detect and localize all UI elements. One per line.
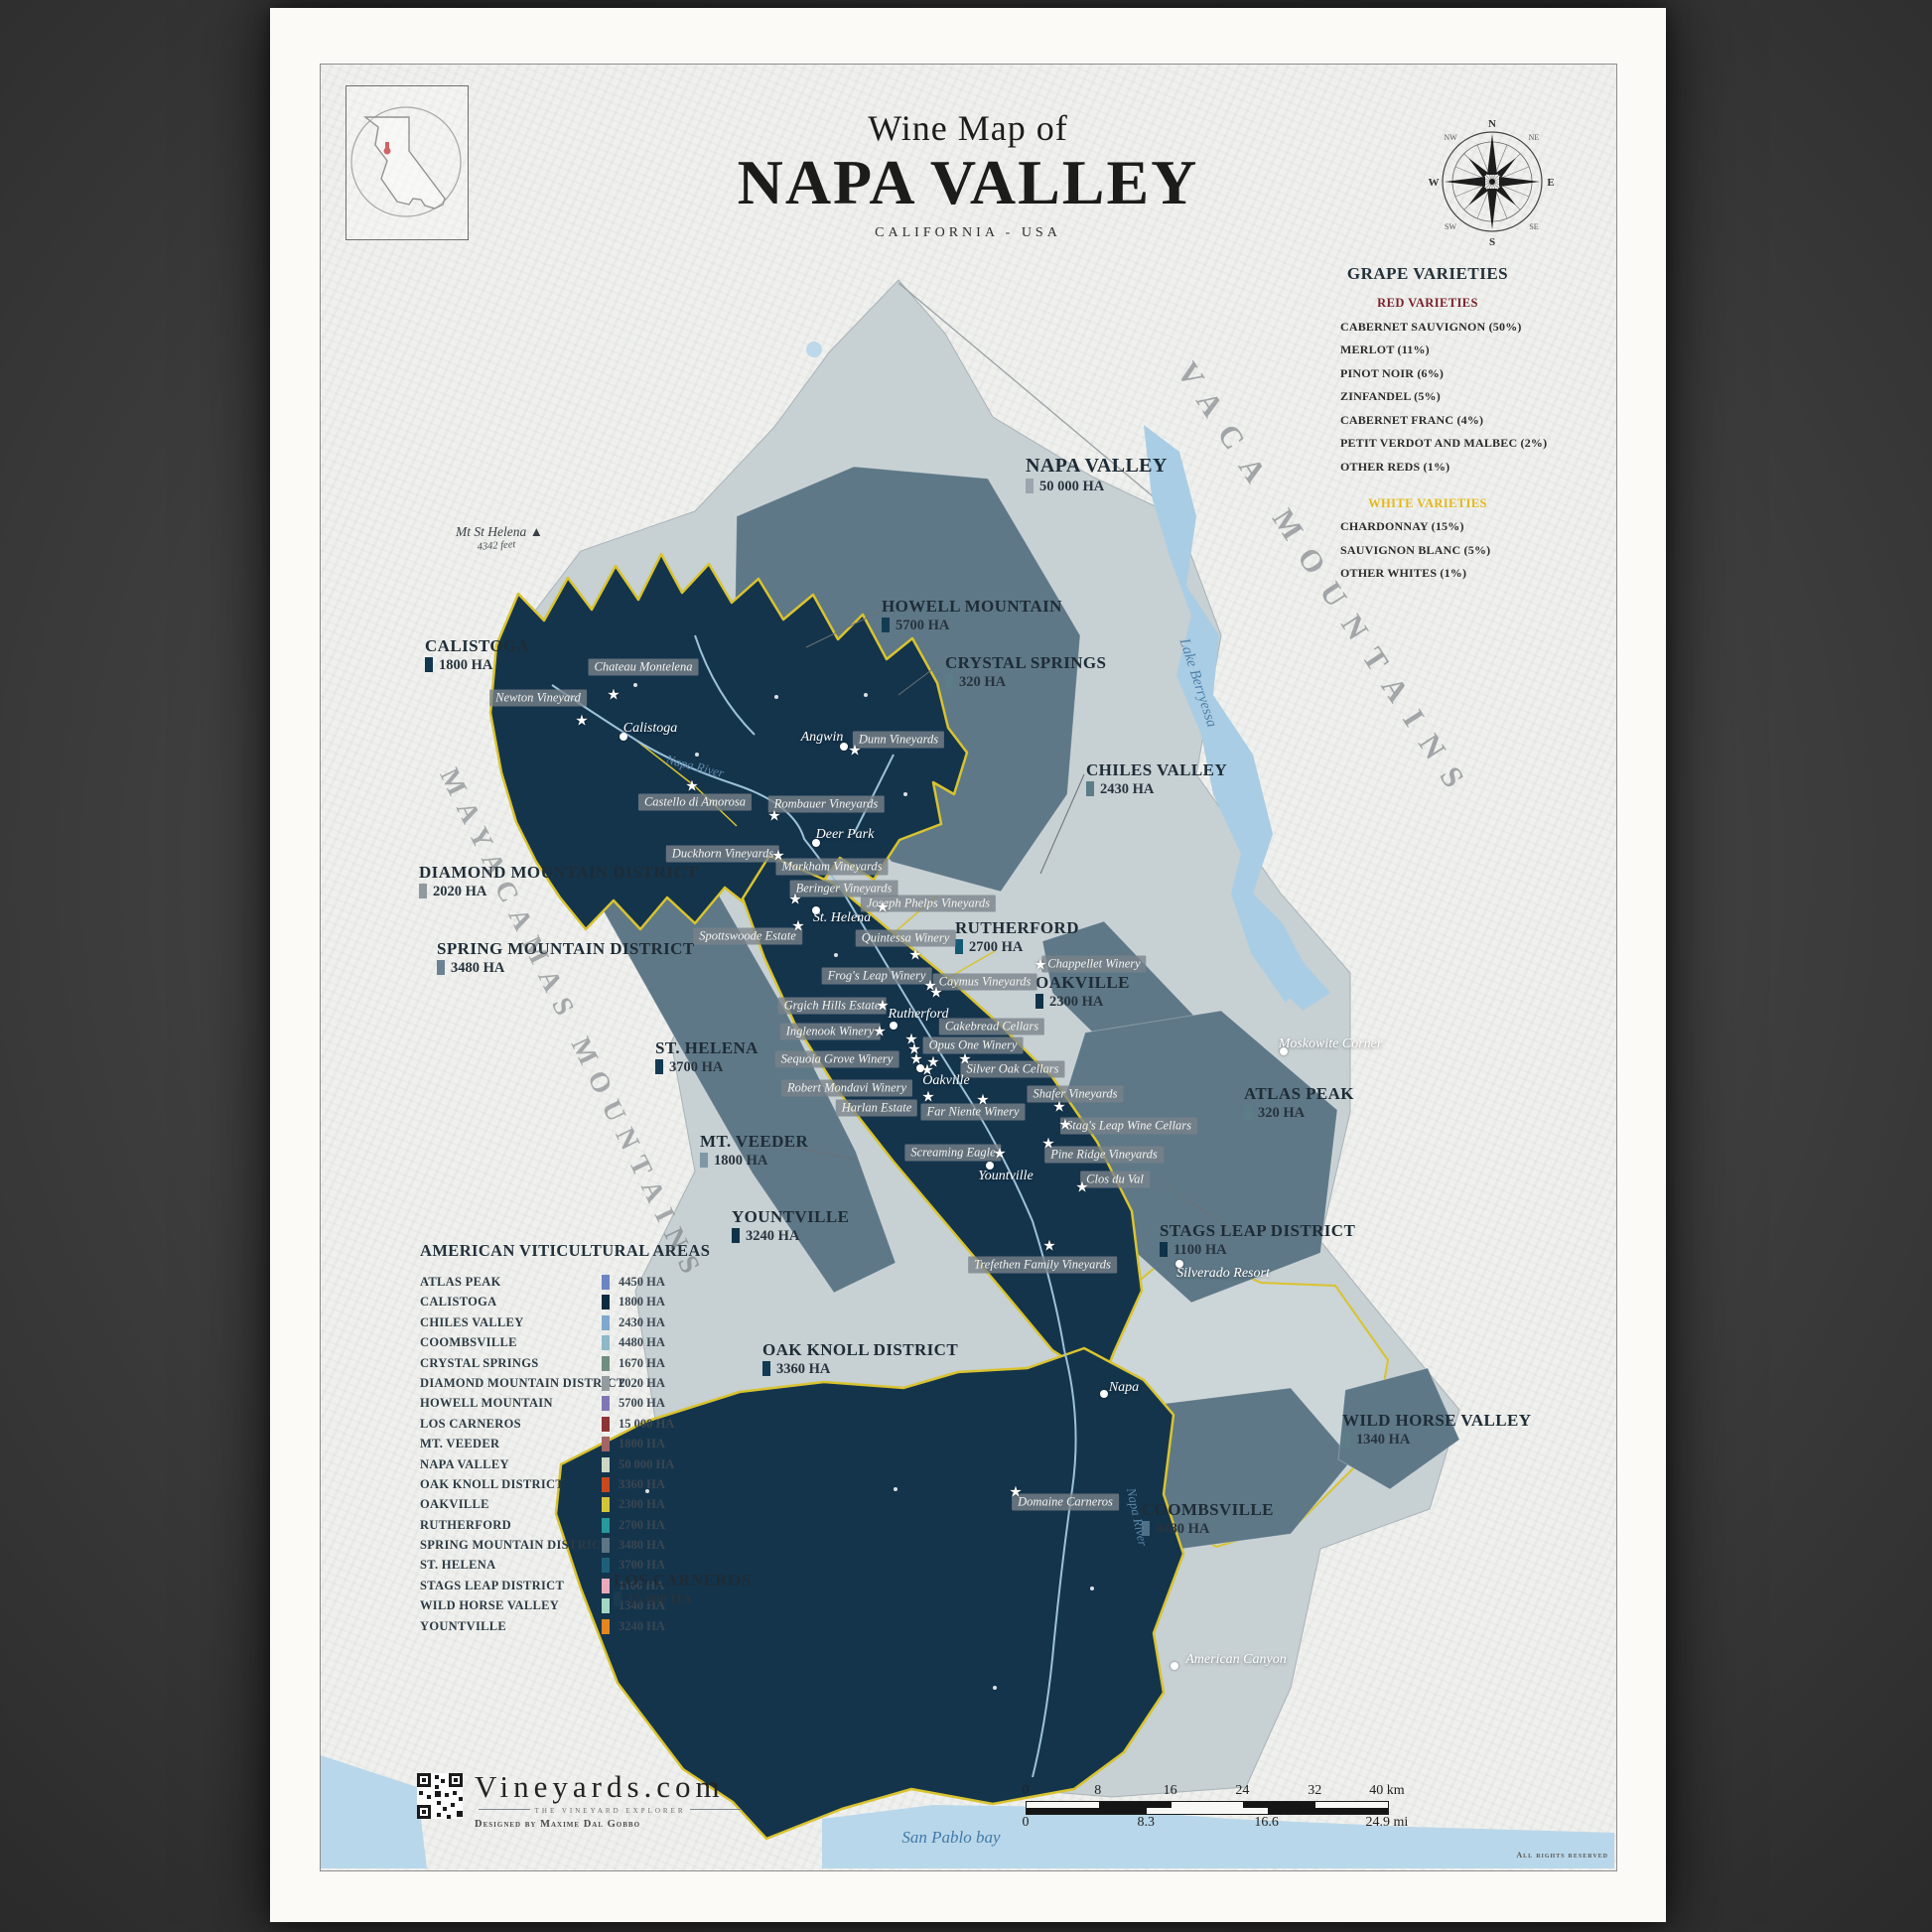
winery-label: Cakebread Cellars bbox=[939, 1019, 1044, 1035]
town-dot bbox=[812, 839, 820, 847]
winery-star-icon: ★ bbox=[1052, 1100, 1065, 1115]
map-ava-area: 2020 HA bbox=[419, 884, 698, 900]
town-label: Rutherford bbox=[889, 1007, 949, 1023]
map-ava-name: WILD HORSE VALLEY bbox=[1342, 1411, 1531, 1431]
ava-color-swatch bbox=[602, 1335, 610, 1350]
red-variety-item: OTHER REDS (1%) bbox=[1340, 460, 1515, 475]
map-ava-name: LOS CARNEROS bbox=[614, 1571, 751, 1590]
winery-label: Trefethen Family Vineyards bbox=[968, 1257, 1117, 1274]
ava-color-swatch bbox=[602, 1538, 610, 1553]
winery-label: Far Niente Winery bbox=[920, 1104, 1025, 1121]
winery-star-icon: ★ bbox=[1042, 1239, 1055, 1254]
ava-legend-name: DIAMOND MOUNTAIN DISTRICT bbox=[420, 1376, 625, 1391]
winery-star-icon: ★ bbox=[929, 986, 942, 1001]
scale-mi-tick: 24.9 mi bbox=[1366, 1815, 1409, 1831]
town-dot bbox=[916, 1064, 924, 1072]
title-prefix: Wine Map of bbox=[670, 107, 1266, 149]
scale-km-tick: 16 bbox=[1164, 1783, 1177, 1799]
map-ava-name: MT. VEEDER bbox=[700, 1132, 808, 1152]
ava-legend-name: SPRING MOUNTAIN DISTRICT bbox=[420, 1538, 610, 1553]
ava-legend-area: 2700 HA bbox=[619, 1518, 665, 1533]
ava-legend-name: STAGS LEAP DISTRICT bbox=[420, 1579, 564, 1593]
scale-bar bbox=[1026, 1801, 1389, 1815]
winery-star-icon: ★ bbox=[788, 893, 801, 907]
winery-label: Stag's Leap Wine Cellars bbox=[1060, 1118, 1197, 1135]
ava-legend-name: HOWELL MOUNTAIN bbox=[420, 1396, 553, 1411]
map-ava-swatch bbox=[700, 1153, 708, 1168]
ava-color-swatch bbox=[602, 1417, 610, 1432]
winery-label: Grgich Hills Estate bbox=[778, 998, 887, 1015]
rights-notice: All rights reserved bbox=[1445, 1851, 1608, 1860]
town-label: Napa bbox=[1109, 1380, 1139, 1396]
geo-label: Mt St Helena ▲ bbox=[456, 524, 543, 540]
map-ava-area: 1800 HA bbox=[425, 657, 529, 674]
ava-color-swatch bbox=[602, 1579, 610, 1593]
ava-color-swatch bbox=[602, 1457, 610, 1472]
map-ava-label: LOS CARNEROS15 000 HA bbox=[614, 1571, 751, 1608]
ava-legend-row: COOMBSVILLE4480 HA bbox=[420, 1333, 718, 1353]
winery-label: Silver Oak Cellars bbox=[960, 1061, 1064, 1078]
winery-star-icon: ★ bbox=[791, 919, 804, 934]
scale-mi-tick: 8.3 bbox=[1138, 1815, 1156, 1831]
ava-legend-row: CRYSTAL SPRINGS1670 HA bbox=[420, 1354, 718, 1374]
white-variety-item: CHARDONNAY (15%) bbox=[1340, 519, 1515, 534]
map-ava-area: 3360 HA bbox=[762, 1361, 958, 1378]
winery-star-icon: ★ bbox=[993, 1147, 1006, 1162]
ava-legend-area: 3240 HA bbox=[619, 1619, 665, 1634]
winery-star-icon: ★ bbox=[848, 744, 861, 759]
scale-mi-segment bbox=[1027, 1808, 1147, 1814]
title-block: Wine Map of NAPA VALLEY CALIFORNIA - USA bbox=[670, 107, 1266, 241]
ava-legend-area: 3480 HA bbox=[619, 1538, 665, 1553]
winery-star-icon: ★ bbox=[1041, 1137, 1054, 1152]
ava-legend-name: CHILES VALLEY bbox=[420, 1315, 524, 1330]
map-ava-name: ATLAS PEAK bbox=[1244, 1084, 1354, 1104]
ava-legend-row: YOUNTVILLE3240 HA bbox=[420, 1617, 718, 1637]
ava-legend-name: OAKVILLE bbox=[420, 1497, 489, 1512]
red-variety-item: PINOT NOIR (6%) bbox=[1340, 366, 1515, 381]
town-dot bbox=[890, 1022, 897, 1030]
ava-color-swatch bbox=[602, 1376, 610, 1391]
winery-label: Inglenook Winery bbox=[780, 1024, 881, 1040]
map-ava-area: 2430 HA bbox=[1086, 781, 1227, 798]
map-ava-swatch bbox=[1086, 781, 1094, 796]
red-varieties-heading: RED VARIETIES bbox=[1340, 296, 1515, 311]
map-ava-swatch bbox=[419, 884, 427, 898]
map-ava-swatch bbox=[437, 960, 445, 975]
ava-color-swatch bbox=[602, 1315, 610, 1330]
town-dot bbox=[840, 743, 848, 751]
winery-star-icon: ★ bbox=[1034, 958, 1046, 973]
town-dot bbox=[1175, 1260, 1183, 1268]
map-ava-area: 1800 HA bbox=[700, 1153, 808, 1170]
winery-star-icon: ★ bbox=[873, 1025, 886, 1039]
map-ava-label: CHILES VALLEY2430 HA bbox=[1086, 760, 1227, 798]
scale-km-tick: 8 bbox=[1094, 1783, 1101, 1799]
ava-color-swatch bbox=[602, 1558, 610, 1573]
ava-color-swatch bbox=[602, 1437, 610, 1451]
map-ava-label: WILD HORSE VALLEY1340 HA bbox=[1342, 1411, 1531, 1449]
winery-label: Screaming Eagle bbox=[904, 1145, 1001, 1162]
town-label: American Canyon bbox=[1185, 1652, 1286, 1668]
map-ava-area: 3700 HA bbox=[655, 1059, 759, 1076]
winery-label: Opus One Winery bbox=[923, 1037, 1024, 1054]
map-ava-name: CHILES VALLEY bbox=[1086, 760, 1227, 780]
ava-legend-row: SPRING MOUNTAIN DISTRICT3480 HA bbox=[420, 1536, 718, 1556]
map-ava-name: ST. HELENA bbox=[655, 1038, 759, 1058]
scale-mi-tick: 0 bbox=[1023, 1815, 1030, 1831]
ava-legend-row: NAPA VALLEY50 000 HA bbox=[420, 1455, 718, 1475]
ava-legend-area: 2020 HA bbox=[619, 1376, 665, 1391]
brand-tagline: THE VINEYARD EXPLORER bbox=[479, 1807, 742, 1815]
scale-km-tick: 32 bbox=[1308, 1783, 1321, 1799]
ava-color-swatch bbox=[602, 1295, 610, 1310]
winery-label: Clos du Val bbox=[1080, 1172, 1150, 1188]
ava-color-swatch bbox=[602, 1619, 610, 1634]
red-variety-item: MERLOT (11%) bbox=[1340, 343, 1515, 357]
winery-star-icon: ★ bbox=[976, 1093, 989, 1108]
ava-legend-name: MT. VEEDER bbox=[420, 1437, 499, 1451]
winery-star-icon: ★ bbox=[771, 849, 784, 864]
winery-label: Harlan Estate bbox=[836, 1100, 917, 1117]
winery-label: Dunn Vineyards bbox=[853, 732, 944, 749]
ava-legend-row: OAKVILLE2300 HA bbox=[420, 1495, 718, 1515]
winery-label: Domaine Carneros bbox=[1012, 1494, 1119, 1511]
winery-label: Robert Mondavi Winery bbox=[781, 1080, 912, 1097]
winery-star-icon: ★ bbox=[908, 948, 921, 963]
winery-label: Chappellet Winery bbox=[1041, 956, 1146, 973]
town-dot bbox=[1280, 1047, 1288, 1055]
map-ava-label: YOUNTVILLE3240 HA bbox=[732, 1207, 849, 1245]
ava-legend-area: 5700 HA bbox=[619, 1396, 665, 1411]
red-varieties-list: CABERNET SAUVIGNON (50%)MERLOT (11%)PINO… bbox=[1340, 320, 1515, 475]
scale-km-tick: 40 km bbox=[1369, 1783, 1404, 1799]
ava-legend-row: MT. VEEDER1800 HA bbox=[420, 1435, 718, 1454]
town-dot bbox=[986, 1162, 994, 1170]
map-ava-area: 320 HA bbox=[945, 674, 1106, 691]
map-ava-name: STAGS LEAP DISTRICT bbox=[1160, 1221, 1355, 1241]
ava-legend-area: 1800 HA bbox=[619, 1295, 665, 1310]
winery-label: Quintessa Winery bbox=[856, 930, 956, 947]
page-title: NAPA VALLEY bbox=[670, 149, 1266, 215]
map-ava-area: 3480 HA bbox=[437, 960, 695, 977]
page-background: N E S W NE SE SW NW bbox=[0, 0, 1932, 1932]
map-ava-area: 2300 HA bbox=[1035, 994, 1130, 1011]
winery-label: Sequoia Grove Winery bbox=[775, 1051, 899, 1068]
map-ava-label: CRYSTAL SPRINGS320 HA bbox=[945, 653, 1106, 691]
map-ava-swatch bbox=[882, 618, 890, 632]
white-varieties-heading: WHITE VARIETIES bbox=[1340, 496, 1515, 511]
ava-legend-row: LOS CARNEROS15 000 HA bbox=[420, 1415, 718, 1435]
map-ava-label: DIAMOND MOUNTAIN DISTRICT2020 HA bbox=[419, 863, 698, 900]
map-ava-name: YOUNTVILLE bbox=[732, 1207, 849, 1227]
map-ava-swatch bbox=[955, 939, 963, 954]
map-ava-area: 5700 HA bbox=[882, 618, 1062, 634]
winery-star-icon: ★ bbox=[607, 688, 620, 703]
white-variety-item: OTHER WHITES (1%) bbox=[1340, 566, 1515, 581]
scale-km-tick: 24 bbox=[1235, 1783, 1249, 1799]
ava-legend-name: ST. HELENA bbox=[420, 1558, 495, 1573]
winery-label: Frog's Leap Winery bbox=[822, 968, 932, 985]
ava-legend-row: RUTHERFORD2700 HA bbox=[420, 1516, 718, 1536]
winery-label: Pine Ridge Vineyards bbox=[1044, 1147, 1164, 1164]
town-dot bbox=[1171, 1662, 1178, 1670]
map-ava-swatch bbox=[1026, 479, 1034, 493]
map-ava-name: OAKVILLE bbox=[1035, 973, 1130, 993]
map-ava-name: HOWELL MOUNTAIN bbox=[882, 597, 1062, 617]
map-ava-swatch bbox=[762, 1361, 770, 1376]
town-dot bbox=[620, 733, 627, 741]
geo-label: San Pablo bay bbox=[901, 1828, 1000, 1848]
winery-star-icon: ★ bbox=[1009, 1485, 1022, 1500]
designer-credit: Designed by Maxime Dal Gobbo bbox=[475, 1819, 640, 1830]
map-ava-area: 50 000 HA bbox=[1026, 479, 1168, 495]
ava-legend-area: 2430 HA bbox=[619, 1315, 665, 1330]
winery-star-icon: ★ bbox=[876, 900, 889, 915]
map-ava-label: MT. VEEDER1800 HA bbox=[700, 1132, 808, 1170]
ava-color-swatch bbox=[602, 1518, 610, 1533]
map-ava-name: NAPA VALLEY bbox=[1026, 455, 1168, 478]
town-label: Silverado Resort bbox=[1176, 1266, 1270, 1282]
map-ava-swatch bbox=[732, 1228, 740, 1243]
map-ava-name: CRYSTAL SPRINGS bbox=[945, 653, 1106, 673]
ava-legend-name: RUTHERFORD bbox=[420, 1518, 511, 1533]
ava-legend-area: 4480 HA bbox=[619, 1335, 665, 1350]
ava-legend-row: HOWELL MOUNTAIN5700 HA bbox=[420, 1394, 718, 1414]
map-ava-area: 3240 HA bbox=[732, 1228, 849, 1245]
ava-legend-row: OAK KNOLL DISTRICT3360 HA bbox=[420, 1475, 718, 1495]
map-ava-name: COOMBSVILLE bbox=[1142, 1500, 1274, 1520]
map-ava-swatch bbox=[1342, 1432, 1350, 1447]
ava-legend-area: 1670 HA bbox=[619, 1356, 665, 1371]
winery-label: Newton Vineyard bbox=[489, 690, 587, 707]
town-label: Moskowite Corner bbox=[1279, 1036, 1383, 1052]
winery-label: Markham Vineyards bbox=[775, 859, 888, 876]
map-ava-swatch bbox=[1244, 1105, 1252, 1120]
ava-legend-row: DIAMOND MOUNTAIN DISTRICT2020 HA bbox=[420, 1374, 718, 1394]
red-variety-item: CABERNET FRANC (4%) bbox=[1340, 413, 1515, 428]
map-ava-swatch bbox=[1035, 994, 1043, 1009]
brand-wordmark: Vineyards.com bbox=[475, 1769, 725, 1805]
map-ava-swatch bbox=[425, 657, 433, 672]
winery-star-icon: ★ bbox=[685, 779, 698, 794]
map-ava-name: SPRING MOUNTAIN DISTRICT bbox=[437, 939, 695, 959]
grape-varieties-panel: GRAPE VARIETIES RED VARIETIES CABERNET S… bbox=[1340, 264, 1515, 581]
winery-star-icon: ★ bbox=[575, 714, 588, 729]
california-inset-frame bbox=[345, 85, 469, 240]
map-ava-swatch bbox=[655, 1059, 663, 1074]
ava-color-swatch bbox=[602, 1356, 610, 1371]
town-label: Deer Park bbox=[816, 827, 875, 843]
winery-label: Shafer Vineyards bbox=[1027, 1086, 1123, 1103]
ava-color-swatch bbox=[602, 1396, 610, 1411]
map-ava-label: NAPA VALLEY50 000 HA bbox=[1026, 455, 1168, 495]
ava-legend-area: 50 000 HA bbox=[619, 1457, 674, 1472]
winery-star-icon: ★ bbox=[921, 1090, 934, 1105]
map-ava-name: OAK KNOLL DISTRICT bbox=[762, 1340, 958, 1360]
map-ava-label: OAKVILLE2300 HA bbox=[1035, 973, 1130, 1011]
map-ava-name: CALISTOGA bbox=[425, 636, 529, 656]
map-ava-area: 2700 HA bbox=[955, 939, 1079, 956]
ava-legend-row: CHILES VALLEY2430 HA bbox=[420, 1313, 718, 1333]
scale-km-tick: 0 bbox=[1023, 1783, 1030, 1799]
ava-legend-area: 2300 HA bbox=[619, 1497, 665, 1512]
ava-legend-name: NAPA VALLEY bbox=[420, 1457, 509, 1472]
winery-star-icon: ★ bbox=[1075, 1180, 1088, 1195]
map-ava-area: 15 000 HA bbox=[614, 1591, 751, 1608]
winery-label: Duckhorn Vineyards bbox=[666, 846, 779, 863]
winery-star-icon: ★ bbox=[958, 1052, 971, 1067]
map-ava-label: HOWELL MOUNTAIN5700 HA bbox=[882, 597, 1062, 634]
town-dot bbox=[1100, 1390, 1108, 1398]
title-subtitle: CALIFORNIA - USA bbox=[670, 225, 1266, 241]
ava-legend-name: CALISTOGA bbox=[420, 1295, 497, 1310]
white-variety-item: SAUVIGNON BLANC (5%) bbox=[1340, 543, 1515, 558]
ava-color-swatch bbox=[602, 1477, 610, 1492]
town-label: Angwin bbox=[801, 730, 844, 746]
ava-legend-area: 1800 HA bbox=[619, 1437, 665, 1451]
red-variety-item: CABERNET SAUVIGNON (50%) bbox=[1340, 320, 1515, 335]
town-label: Yountville bbox=[978, 1169, 1034, 1184]
winery-star-icon: ★ bbox=[926, 1055, 939, 1070]
town-label: Calistoga bbox=[623, 721, 677, 737]
town-dot bbox=[812, 906, 820, 914]
ava-color-swatch bbox=[602, 1598, 610, 1613]
map-ava-label: SPRING MOUNTAIN DISTRICT3480 HA bbox=[437, 939, 695, 977]
map-ava-label: CALISTOGA1800 HA bbox=[425, 636, 529, 674]
map-ava-label: STAGS LEAP DISTRICT1100 HA bbox=[1160, 1221, 1355, 1259]
white-varieties-list: CHARDONNAY (15%)SAUVIGNON BLANC (5%)OTHE… bbox=[1340, 519, 1515, 581]
winery-label: Rombauer Vineyards bbox=[768, 796, 885, 813]
town-label: Oakville bbox=[922, 1073, 969, 1089]
ava-legend-row: ATLAS PEAK4450 HA bbox=[420, 1273, 718, 1293]
ava-color-swatch bbox=[602, 1497, 610, 1512]
map-ava-name: DIAMOND MOUNTAIN DISTRICT bbox=[419, 863, 698, 883]
scale-mi-segment bbox=[1268, 1808, 1388, 1814]
ava-legend-row: CALISTOGA1800 HA bbox=[420, 1293, 718, 1312]
town-label: St. Helena bbox=[813, 910, 871, 926]
ava-legend-area: 4450 HA bbox=[619, 1275, 665, 1290]
winery-star-icon: ★ bbox=[767, 809, 780, 824]
winery-label: Spottswoode Estate bbox=[693, 928, 802, 945]
scale-mi-segment bbox=[1147, 1808, 1267, 1814]
map-ava-name: RUTHERFORD bbox=[955, 918, 1079, 938]
ava-color-swatch bbox=[602, 1275, 610, 1290]
map-ava-swatch bbox=[945, 674, 953, 689]
ava-legend-name: LOS CARNEROS bbox=[420, 1417, 521, 1432]
map-ava-label: RUTHERFORD2700 HA bbox=[955, 918, 1079, 956]
map-ava-area: 320 HA bbox=[1244, 1105, 1354, 1122]
map-ava-area: 1340 HA bbox=[1342, 1432, 1531, 1449]
map-ava-label: OAK KNOLL DISTRICT3360 HA bbox=[762, 1340, 958, 1378]
ava-legend-area: 3360 HA bbox=[619, 1477, 665, 1492]
map-ava-area: 1100 HA bbox=[1160, 1242, 1355, 1259]
map-ava-label: COOMBSVILLE4480 HA bbox=[1142, 1500, 1274, 1538]
ava-legend-area: 15 000 HA bbox=[619, 1417, 674, 1432]
winery-star-icon: ★ bbox=[1058, 1118, 1071, 1133]
map-ava-label: ATLAS PEAK320 HA bbox=[1244, 1084, 1354, 1122]
ava-legend-name: WILD HORSE VALLEY bbox=[420, 1598, 559, 1613]
ava-legend-name: CRYSTAL SPRINGS bbox=[420, 1356, 538, 1371]
ava-legend-name: OAK KNOLL DISTRICT bbox=[420, 1477, 564, 1492]
map-ava-swatch bbox=[614, 1591, 621, 1606]
red-variety-item: PETIT VERDOT AND MALBEC (2%) bbox=[1340, 436, 1515, 451]
winery-label: Caymus Vineyards bbox=[933, 974, 1037, 991]
winery-label: Chateau Montelena bbox=[589, 659, 699, 676]
ava-legend-name: ATLAS PEAK bbox=[420, 1275, 501, 1290]
ava-legend-name: YOUNTVILLE bbox=[420, 1619, 506, 1634]
map-ava-swatch bbox=[1160, 1242, 1168, 1257]
winery-label: Castello di Amorosa bbox=[638, 794, 752, 811]
map-ava-label: ST. HELENA3700 HA bbox=[655, 1038, 759, 1076]
ava-legend-name: COOMBSVILLE bbox=[420, 1335, 517, 1350]
map-ava-area: 4480 HA bbox=[1142, 1521, 1274, 1538]
red-variety-item: ZINFANDEL (5%) bbox=[1340, 389, 1515, 404]
grape-varieties-heading: GRAPE VARIETIES bbox=[1340, 264, 1515, 284]
scale-mi-tick: 16.6 bbox=[1254, 1815, 1279, 1831]
